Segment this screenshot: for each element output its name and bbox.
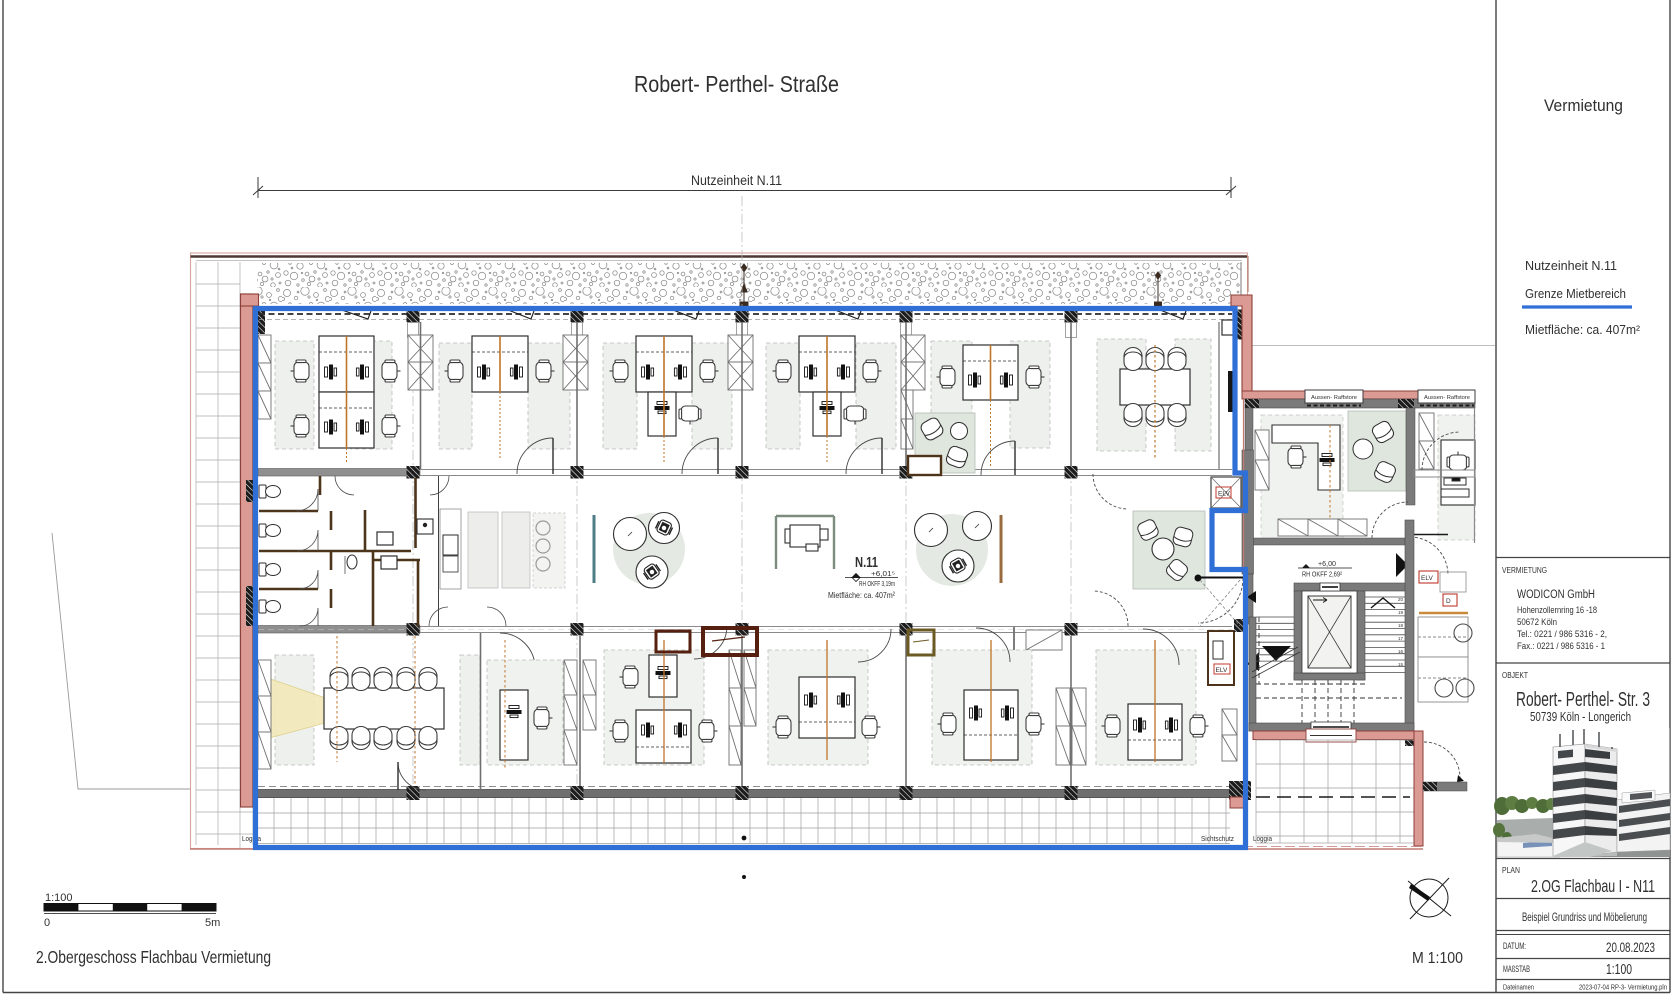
svg-text:RH OKFF 3,19m: RH OKFF 3,19m (859, 581, 895, 588)
svg-text:ELV: ELV (1421, 575, 1433, 582)
svg-text:+6,01⁵: +6,01⁵ (871, 571, 895, 578)
svg-text:VERMIETUNG: VERMIETUNG (1502, 565, 1547, 575)
svg-text:Grenze Mietbereich: Grenze Mietbereich (1525, 286, 1626, 301)
svg-text:D: D (1446, 598, 1451, 605)
svg-text:Hohenzollernring 16 -18: Hohenzollernring 16 -18 (1517, 605, 1597, 616)
svg-text:Loggia: Loggia (242, 834, 262, 843)
svg-text:Robert- Perthel- Str. 3: Robert- Perthel- Str. 3 (1516, 689, 1650, 711)
svg-text:20: 20 (1398, 597, 1404, 602)
svg-text:WODICON GmbH: WODICON GmbH (1517, 589, 1595, 601)
svg-text:Robert- Perthel- Straße: Robert- Perthel- Straße (634, 71, 839, 97)
svg-text:20.08.2023: 20.08.2023 (1606, 939, 1655, 955)
svg-text:MAßSTAB: MAßSTAB (1503, 964, 1530, 974)
svg-text:Beispiel Grundriss und Möbelie: Beispiel Grundriss und Möbelierung (1522, 910, 1647, 924)
svg-text:15: 15 (1398, 662, 1404, 667)
svg-text:16: 16 (1398, 649, 1404, 654)
svg-text:Vermietung: Vermietung (1544, 96, 1623, 115)
svg-text:2.Obergeschoss Flachbau Vermie: 2.Obergeschoss Flachbau Vermietung (36, 947, 271, 967)
svg-text:17: 17 (1398, 636, 1404, 641)
svg-text:OBJEKT: OBJEKT (1502, 670, 1528, 680)
svg-text:5m: 5m (205, 917, 220, 929)
svg-text:DATUM:: DATUM: (1503, 941, 1526, 951)
svg-text:Fax.: 0221 / 986 5316 - 1: Fax.: 0221 / 986 5316 - 1 (1517, 641, 1605, 652)
svg-text:N.11: N.11 (855, 554, 878, 571)
svg-text:PLAN: PLAN (1502, 865, 1520, 875)
svg-text:1:100: 1:100 (45, 892, 73, 904)
svg-text:50672 Köln: 50672 Köln (1517, 617, 1557, 628)
svg-text:Aussen- Raffstore: Aussen- Raffstore (1424, 395, 1470, 401)
svg-text:Sichtschutz: Sichtschutz (1201, 834, 1234, 843)
svg-text:Dateinamen: Dateinamen (1503, 983, 1534, 992)
svg-text:+6,00: +6,00 (1318, 561, 1336, 568)
svg-text:Mietfläche: ca. 407m²: Mietfläche: ca. 407m² (828, 590, 895, 600)
svg-text:Loggia: Loggia (1253, 834, 1273, 843)
svg-text:0: 0 (44, 917, 50, 929)
svg-text:Tel.: 0221 / 986 5316 - 2,: Tel.: 0221 / 986 5316 - 2, (1517, 629, 1607, 640)
svg-text:ELV: ELV (1218, 491, 1230, 498)
svg-text:Mietfläche: ca. 407m²: Mietfläche: ca. 407m² (1525, 322, 1641, 337)
svg-text:2.OG Flachbau I - N11: 2.OG Flachbau I - N11 (1531, 876, 1655, 896)
svg-text:ELV: ELV (1216, 667, 1228, 674)
svg-text:50739 Köln - Longerich: 50739 Köln - Longerich (1530, 709, 1631, 724)
svg-text:Aussen- Raffstore: Aussen- Raffstore (1311, 395, 1357, 401)
svg-text:M 1:100: M 1:100 (1412, 950, 1463, 967)
svg-text:1:100: 1:100 (1606, 962, 1632, 978)
svg-text:RH OKFF 2,69²: RH OKFF 2,69² (1302, 572, 1343, 579)
svg-text:18: 18 (1398, 623, 1404, 628)
svg-text:Nutzeinheit N.11: Nutzeinheit N.11 (691, 173, 782, 188)
svg-text:Nutzeinheit N.11: Nutzeinheit N.11 (1525, 258, 1617, 273)
svg-text:19: 19 (1398, 610, 1404, 615)
svg-text:2023-07-04 RP-3- Vermietung.pl: 2023-07-04 RP-3- Vermietung.pln (1579, 983, 1667, 992)
